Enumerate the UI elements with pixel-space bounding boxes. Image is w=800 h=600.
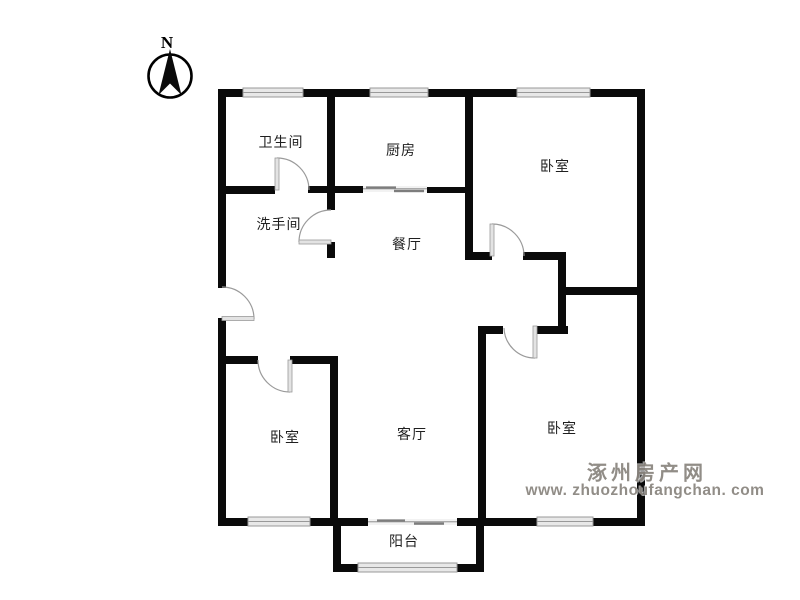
wall-kitchen-bedroom-divider	[465, 89, 473, 260]
wall-bedrooms-right-divider	[558, 287, 645, 295]
wall-bedroom-tr-bottom-left	[465, 252, 492, 260]
floorplan-drawing	[0, 0, 800, 600]
window-symbol	[358, 563, 457, 572]
wall-bathroom-bottom-left	[218, 186, 275, 194]
wall-bedroom-bl-top-left	[218, 356, 258, 364]
wall-balcony-right	[476, 518, 484, 572]
wall-living-bedroom-br-divider	[478, 326, 486, 526]
wall-outer-left-lower	[218, 318, 226, 526]
watermark-site-url: www. zhuozhoufangchan. com	[526, 482, 765, 500]
wall-bedroom-br-top-right	[533, 326, 568, 334]
room-label-bedroom-top-right: 卧室	[540, 156, 570, 176]
wall-outer-bottom-3	[457, 518, 537, 526]
room-label-dining-room: 餐厅	[392, 234, 422, 254]
wall-balcony-bottom-left	[333, 564, 358, 572]
window-symbol	[248, 517, 310, 526]
compass-icon	[149, 49, 192, 98]
door-bedroom-top-right	[490, 224, 524, 256]
floorplan-page: N 卫生间 厨房 卧室 洗手间 餐厅 卧室 客厅 卧室 阳台 涿州房产网 www…	[0, 0, 800, 600]
door-bedroom-bottom-left	[258, 360, 292, 392]
room-label-washroom: 洗手间	[257, 214, 302, 234]
window-symbol	[517, 88, 590, 97]
wall-balcony-bottom-right	[457, 564, 484, 572]
wall-balcony-left	[333, 518, 341, 572]
wall-outer-bottom-1	[218, 518, 248, 526]
door-bedroom-bottom-right	[504, 326, 537, 358]
room-label-bedroom-bottom-right: 卧室	[547, 418, 577, 438]
wall-bathroom-bottom-right	[308, 186, 363, 193]
compass-north-label: N	[161, 33, 173, 53]
door-entrance	[222, 287, 254, 321]
sliding-door-kitchen	[363, 186, 427, 192]
window-symbol	[243, 88, 303, 97]
door-washroom	[299, 210, 331, 244]
wall-bedroom-bl-living-divider	[330, 356, 338, 526]
room-label-bedroom-bottom-left: 卧室	[270, 427, 300, 447]
window-symbol	[370, 88, 428, 97]
room-label-kitchen: 厨房	[386, 140, 416, 160]
room-label-bathroom: 卫生间	[259, 132, 304, 152]
window-symbol	[537, 517, 593, 526]
sliding-door-balcony	[368, 519, 457, 525]
wall-outer-bottom-4	[593, 518, 645, 526]
wall-kitchen-bottom	[427, 187, 468, 193]
room-label-balcony: 阳台	[389, 531, 419, 551]
door-bathroom	[275, 158, 309, 190]
room-label-living-room: 客厅	[397, 424, 427, 444]
